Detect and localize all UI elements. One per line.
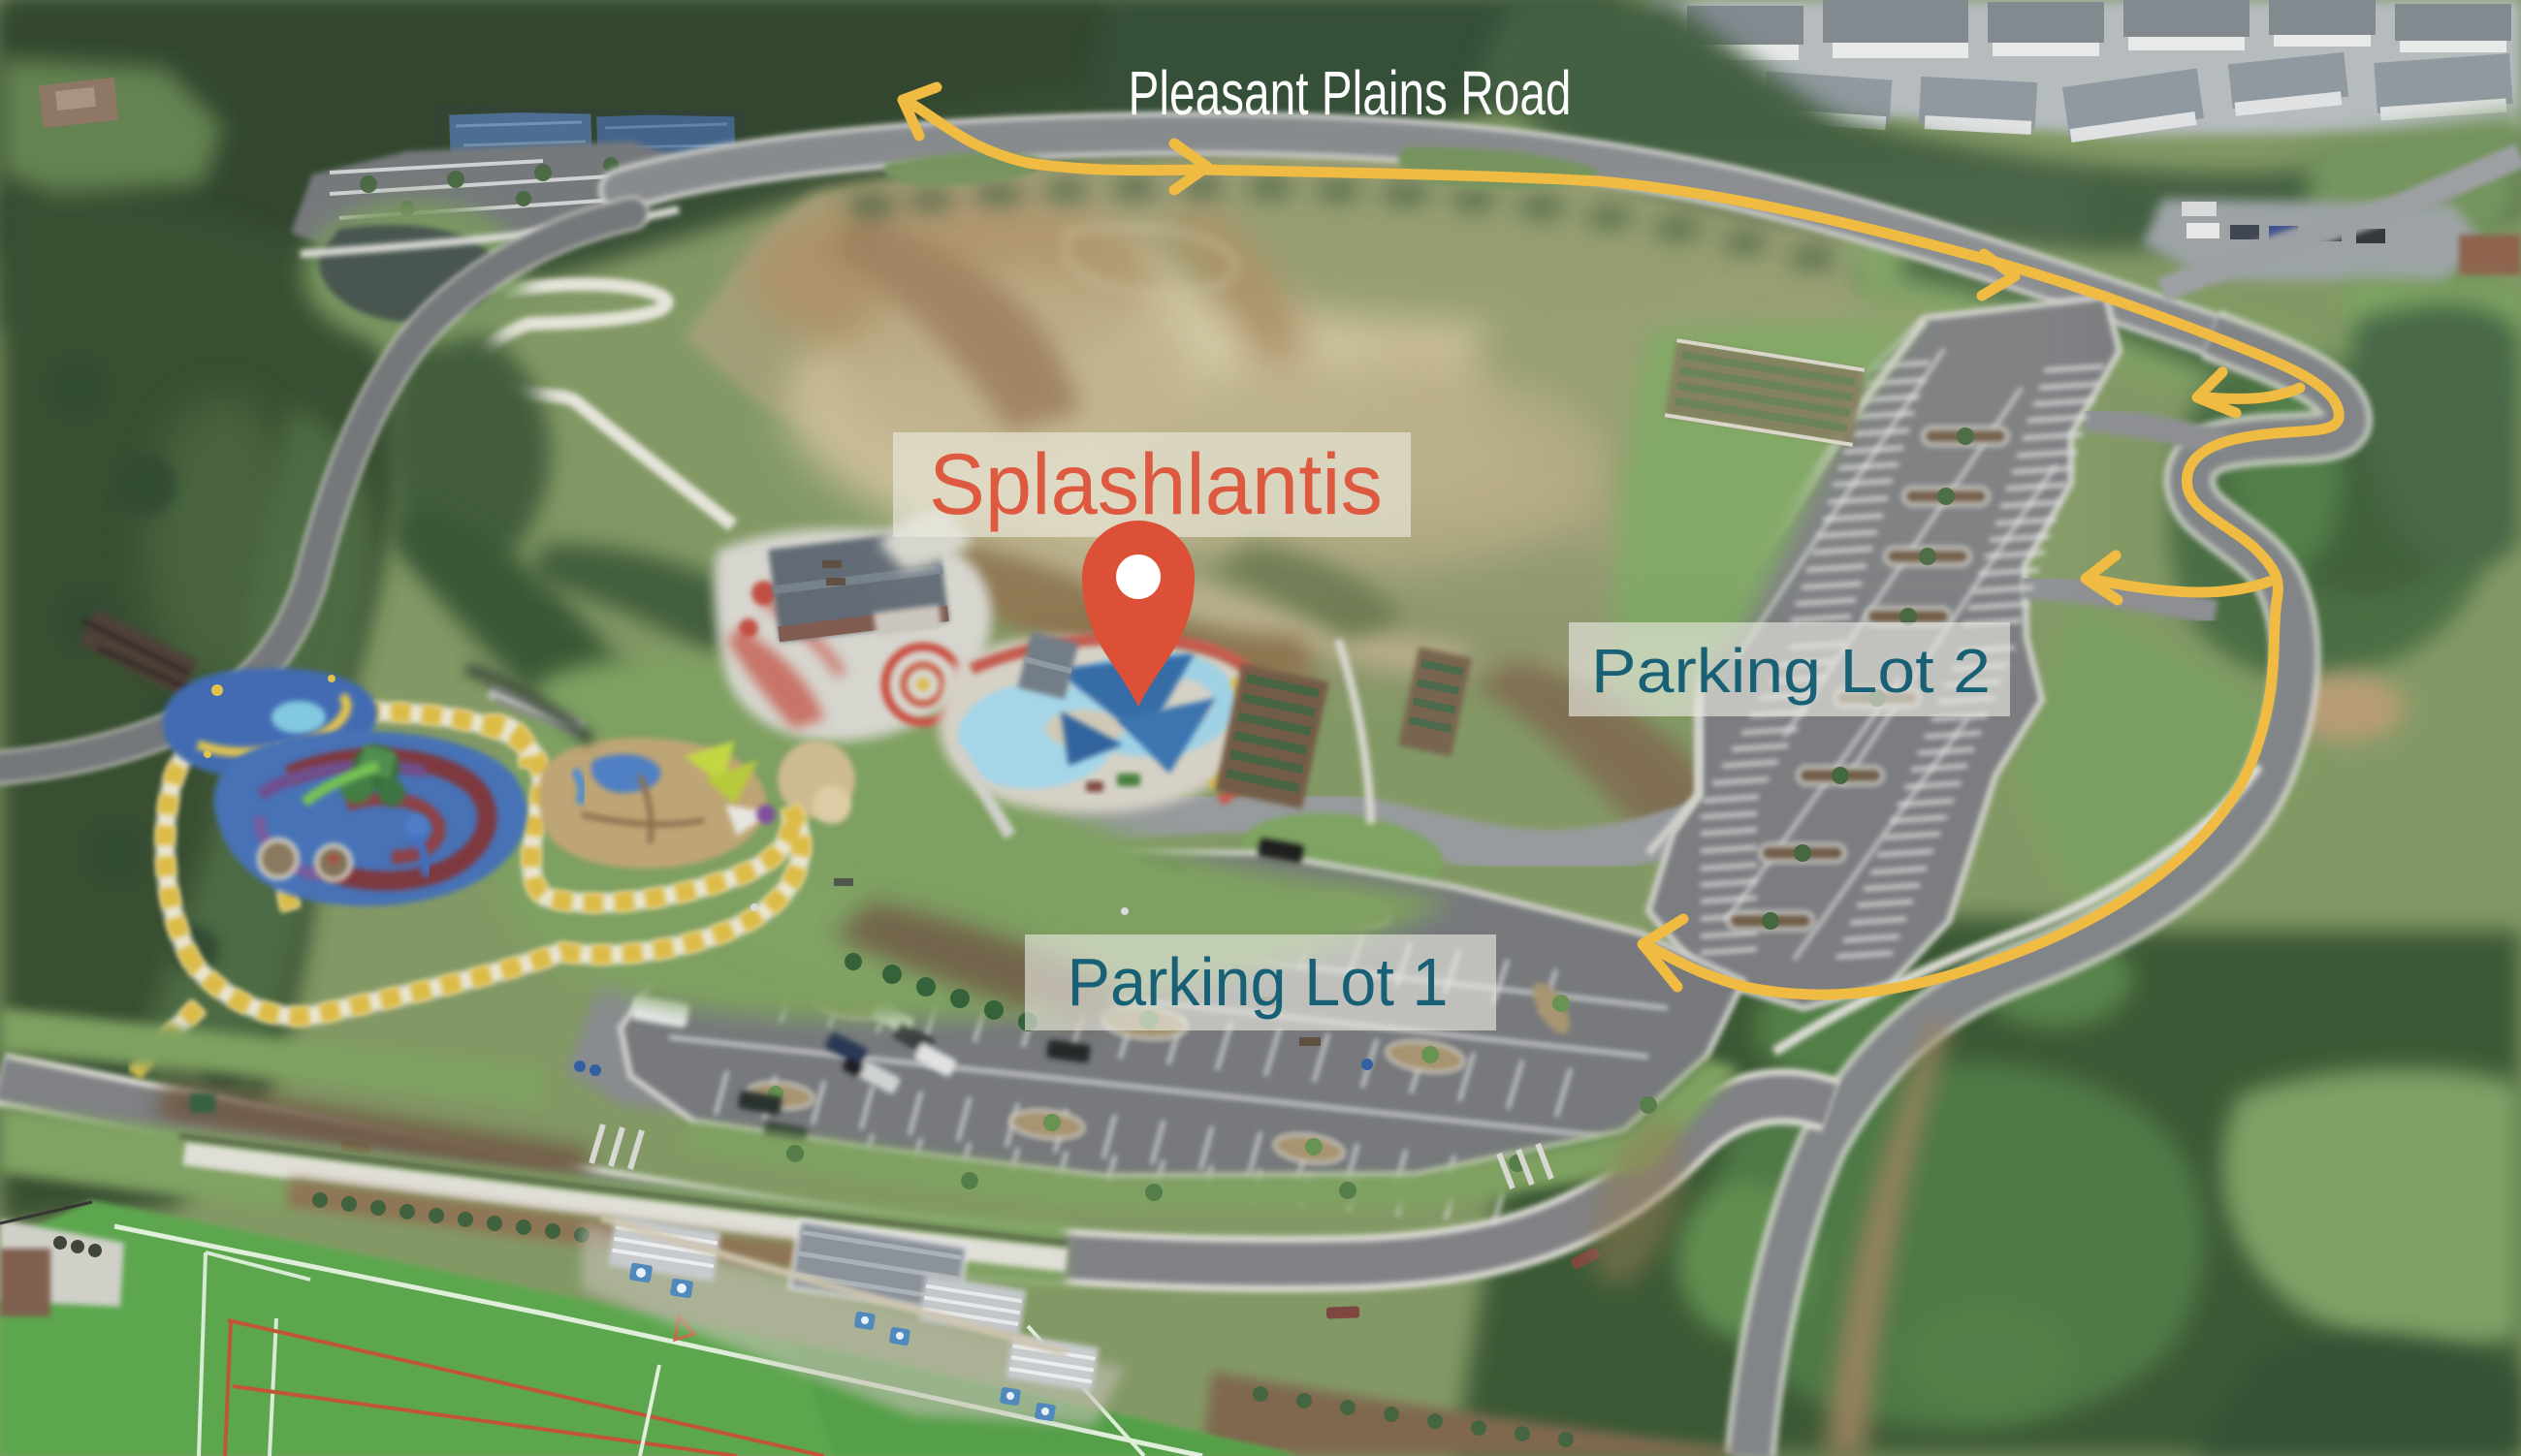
svg-text:Parking Lot 2: Parking Lot 2 — [1591, 636, 1991, 706]
svg-text:Pleasant Plains Road: Pleasant Plains Road — [1129, 58, 1572, 128]
svg-text:Parking Lot 1: Parking Lot 1 — [1068, 944, 1449, 1020]
svg-text:Splashlantis: Splashlantis — [929, 435, 1383, 532]
